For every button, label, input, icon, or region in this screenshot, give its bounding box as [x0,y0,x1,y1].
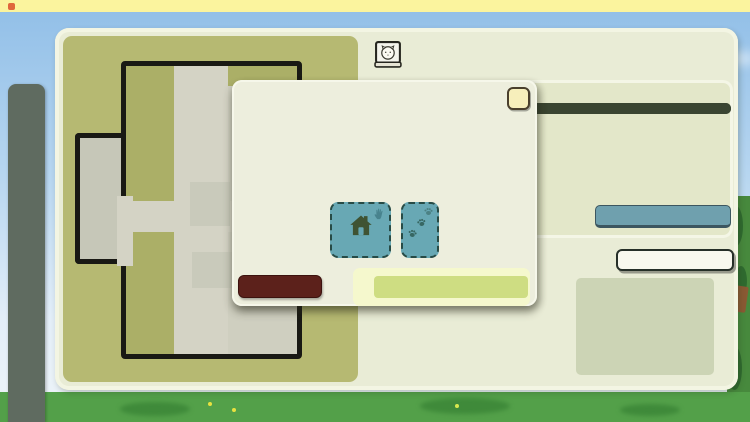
grass-background [0,392,750,422]
close-button[interactable] [507,87,530,110]
storage-room-area [190,182,230,226]
washing-room-area [192,252,234,288]
cage-slots-row [238,124,531,191]
toolbar-sidebar [8,84,45,422]
paw-icon [415,216,428,229]
wall-opening [117,196,133,266]
add-door-button[interactable] [401,202,439,258]
game-screen [0,0,750,422]
cleanliness-bar-cap [721,103,731,114]
add-cage-button[interactable] [330,202,391,258]
status-bar [0,0,750,12]
cat-icon [374,39,403,71]
app-icon [8,3,15,10]
apply-button[interactable] [374,276,528,298]
apply-strip [353,268,530,306]
upgrade-room-button[interactable] [595,205,731,228]
workers-area [576,278,714,375]
paw-icon [406,227,419,240]
hand-icon [372,206,387,221]
house-icon [347,212,374,239]
revert-button[interactable] [238,275,322,298]
manage-cages-modal [232,80,537,306]
manage-workers-button[interactable] [616,249,734,271]
